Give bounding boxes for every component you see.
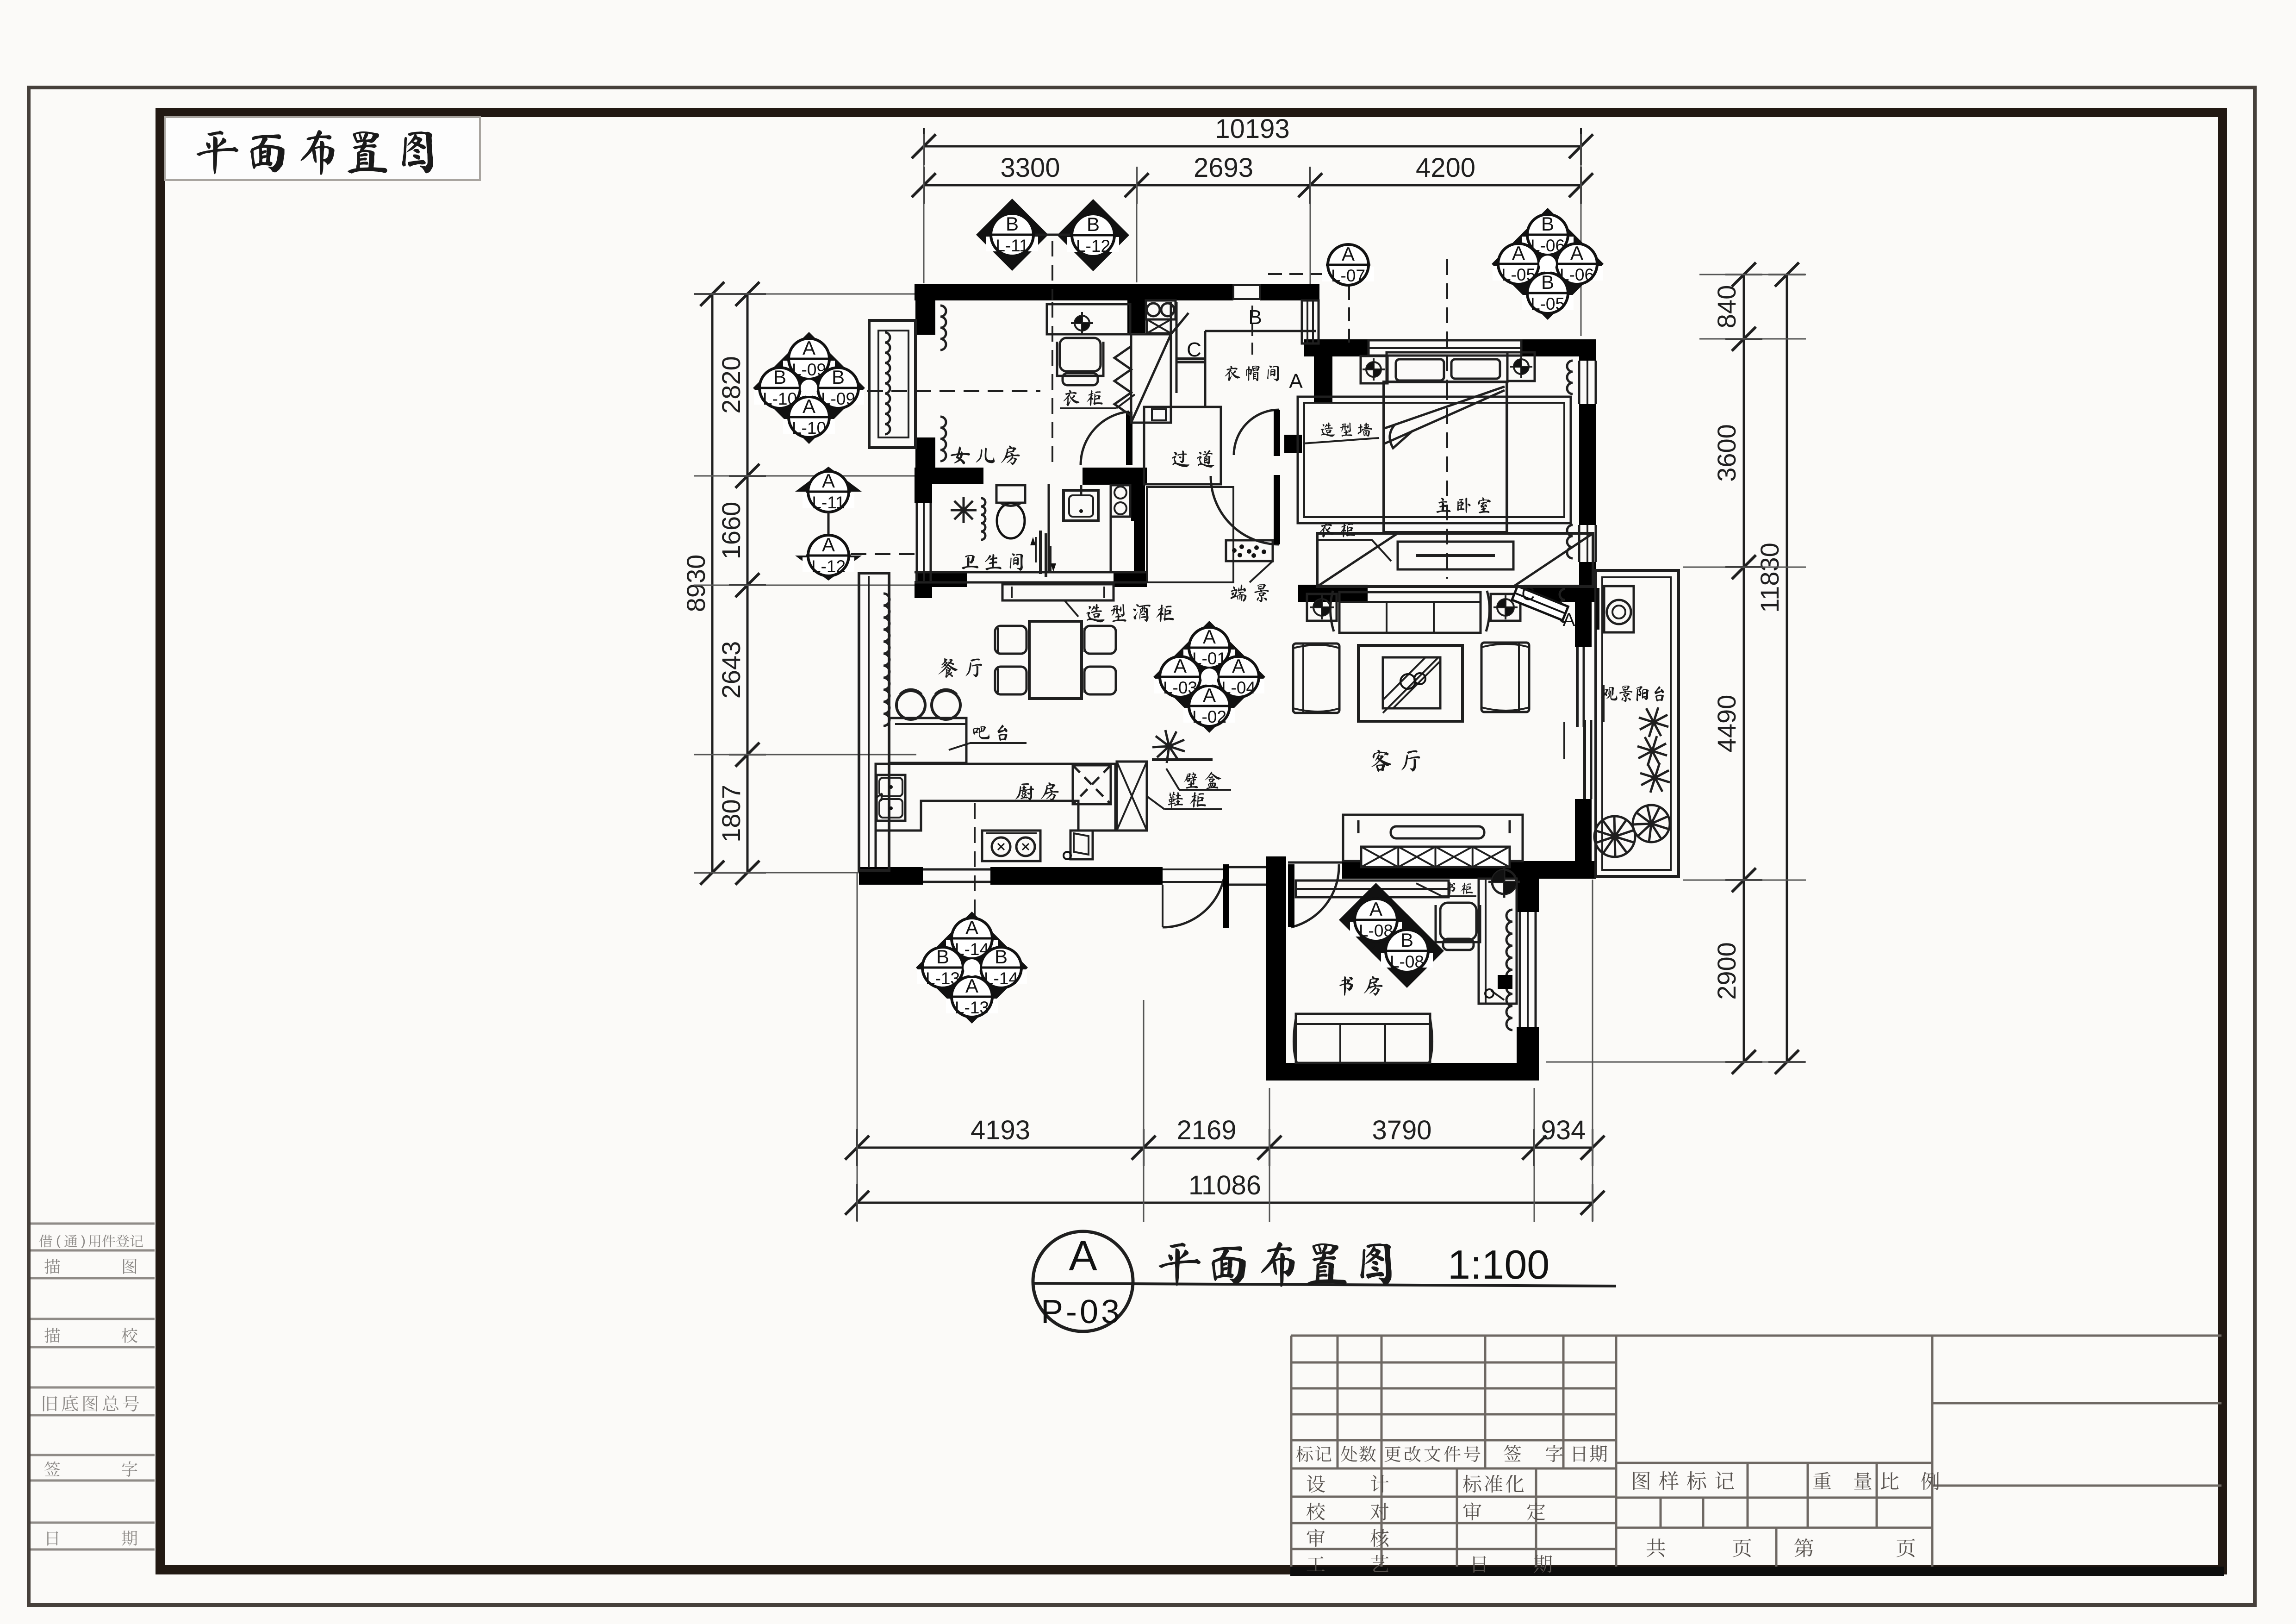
svg-text:2643: 2643 [716,641,746,699]
svg-text:L-13: L-13 [955,998,989,1017]
svg-text:B: B [1006,213,1019,235]
svg-text:B: B [1541,271,1554,293]
svg-text:L-08: L-08 [1390,952,1424,971]
svg-text:A: A [1174,655,1187,677]
svg-text:3300: 3300 [1000,153,1060,183]
svg-text:L-12: L-12 [811,557,846,576]
svg-text:A: A [1563,610,1575,630]
svg-text:1807: 1807 [716,785,746,843]
svg-text:840: 840 [1712,285,1741,328]
svg-text:B: B [1087,213,1100,235]
svg-text:10193: 10193 [1215,114,1289,144]
svg-text:A: A [1289,370,1303,393]
svg-text:L-11: L-11 [996,236,1028,255]
svg-text:(: ( [56,1233,61,1249]
svg-text:3600: 3600 [1712,424,1741,482]
svg-text:B: B [936,946,949,968]
svg-text:B: B [1248,306,1262,329]
svg-text:1660: 1660 [716,502,746,560]
svg-text:A: A [1232,655,1245,677]
svg-text:4200: 4200 [1416,153,1475,183]
svg-text:934: 934 [1541,1115,1586,1145]
svg-text:L-08: L-08 [1359,921,1393,940]
svg-text:A: A [965,975,978,997]
svg-text:B: B [1400,929,1413,951]
svg-text:A: A [822,470,835,492]
svg-text:L-10: L-10 [792,418,826,437]
svg-text:B: B [773,366,786,388]
svg-text:A: A [1369,898,1382,920]
svg-text:L-02: L-02 [1192,707,1226,726]
svg-text:2820: 2820 [716,356,746,414]
svg-text:A: A [822,534,835,556]
svg-text:B: B [995,946,1008,968]
svg-text:A: A [1570,242,1583,264]
svg-text:11086: 11086 [1188,1170,1261,1200]
svg-text:B: B [1541,213,1554,235]
svg-text:P-03: P-03 [1041,1293,1122,1330]
svg-text:4490: 4490 [1712,695,1741,753]
svg-text:A: A [803,395,815,417]
svg-text:A: A [1203,684,1216,706]
svg-text:A: A [1512,242,1525,264]
svg-text:1:100: 1:100 [1448,1242,1549,1287]
svg-text:A: A [1069,1232,1097,1280]
svg-text:2169: 2169 [1176,1115,1236,1145]
svg-text:C: C [1187,338,1201,361]
svg-text:4193: 4193 [971,1115,1030,1145]
svg-text:A: A [1203,626,1216,648]
svg-text:A: A [1342,243,1355,265]
svg-text:B: B [832,366,845,388]
svg-text:L-07: L-07 [1331,266,1365,285]
svg-text:8930: 8930 [681,555,710,612]
svg-text:A: A [803,337,815,359]
svg-text:3790: 3790 [1372,1115,1431,1145]
svg-text:11830: 11830 [1755,543,1784,613]
svg-text:): ) [81,1233,86,1249]
svg-text:L-05: L-05 [1531,294,1565,313]
svg-text:2693: 2693 [1194,153,1253,183]
svg-text:A: A [965,917,978,938]
svg-text:L-12: L-12 [1076,237,1110,256]
svg-text:L-11: L-11 [812,493,845,512]
svg-text:2900: 2900 [1712,942,1741,1000]
